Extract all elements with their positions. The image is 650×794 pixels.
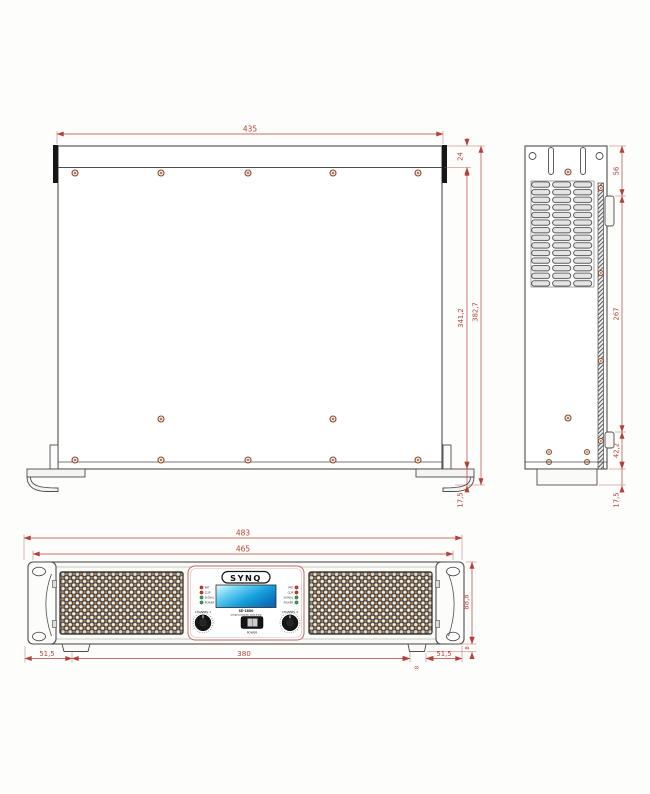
front-view: 483 465 <box>24 529 477 670</box>
led-label: POWER <box>284 601 294 605</box>
dim-label: 88,8 <box>463 594 471 609</box>
center-control-panel: SYNQ SE-1800 STEREO POWER AMPLIFIER PRT … <box>188 566 304 640</box>
brand-logo: SYNQ <box>222 572 270 584</box>
dim-top-body-depth: 341,2 <box>452 168 471 470</box>
ear-hinge <box>53 621 57 628</box>
led-label: SIGNAL <box>284 596 294 600</box>
led-indicator <box>295 596 298 599</box>
led-indicator <box>200 591 203 594</box>
led-label: POWER <box>205 601 215 605</box>
dim-label: 465 <box>236 545 251 554</box>
led-label: PRT <box>288 586 293 590</box>
dim-side-upper: 56 <box>609 146 626 196</box>
side-view-hole <box>596 153 603 160</box>
ear-hinge <box>53 581 57 588</box>
front-left-foot <box>62 644 90 652</box>
ear-hinge <box>436 581 440 588</box>
screw <box>158 457 164 463</box>
side-view-vent-grille <box>531 181 594 287</box>
front-left-rack-ear <box>28 562 57 644</box>
screw <box>330 457 336 463</box>
screw <box>585 450 590 455</box>
top-view-body <box>58 146 442 469</box>
top-view: 435 24 341,2 382,7 17,5 <box>27 125 485 508</box>
dim-front-panel-width: 465 <box>33 545 453 561</box>
screw <box>598 359 603 364</box>
dim-top-foot-height: 17,5 <box>457 462 468 508</box>
dim-label: 8 <box>415 666 421 669</box>
drawing-canvas: 435 24 341,2 382,7 17,5 <box>0 0 650 794</box>
dim-top-front-depth: 24 <box>444 138 485 176</box>
ear-hinge <box>436 621 440 628</box>
lcd-display <box>216 585 276 608</box>
dim-label: 17,5 <box>457 492 465 507</box>
screw <box>158 416 164 422</box>
side-view: 56 267 42,2 17,5 <box>525 146 626 508</box>
front-right-foot <box>408 644 426 652</box>
screw <box>158 170 164 176</box>
right-speaker-grille <box>309 572 432 634</box>
dim-label: 17,5 <box>613 492 621 507</box>
dim-label: 341,2 <box>457 308 465 327</box>
dim-label: 56 <box>613 167 621 176</box>
led-indicator <box>200 586 203 589</box>
led-indicator <box>200 596 203 599</box>
led-label: PRT <box>205 586 210 590</box>
dim-label: 267 <box>613 308 621 321</box>
dim-front-foot-width: 8 <box>402 651 434 670</box>
dim-side-mid: 267 <box>613 196 627 432</box>
dim-label: 380 <box>237 649 251 658</box>
side-view-slot <box>581 148 586 175</box>
screw <box>415 170 421 176</box>
technical-drawing: 435 24 341,2 382,7 17,5 <box>0 0 650 794</box>
side-view-foot <box>537 469 597 485</box>
screw <box>598 439 603 444</box>
mounting-slot <box>33 567 46 576</box>
side-view-slot <box>549 148 554 175</box>
dim-label: 51,5 <box>39 650 54 658</box>
side-view-hole <box>529 153 536 160</box>
led-indicator <box>295 586 298 589</box>
side-view-upper-tab <box>605 196 614 226</box>
dim-label: 483 <box>236 529 251 538</box>
dim-label: 24 <box>457 152 465 161</box>
dim-label: 51,5 <box>436 650 451 658</box>
mounting-slot <box>447 632 460 641</box>
screw <box>72 170 78 176</box>
screw <box>245 457 251 463</box>
led-indicator <box>200 601 203 604</box>
side-view-rack-rail <box>598 183 604 469</box>
screw <box>245 170 251 176</box>
screw <box>598 271 603 276</box>
dim-top-width: 435 <box>57 125 443 145</box>
power-label: POWER <box>247 631 257 635</box>
dim-label: 435 <box>243 125 258 134</box>
channel-2-label: CHANNEL 2 <box>282 610 298 614</box>
channel-1-label: CHANNEL 1 <box>195 610 211 614</box>
led-label: CLIP <box>288 591 294 595</box>
led-indicator <box>295 591 298 594</box>
led-indicator <box>295 601 298 604</box>
screw <box>330 170 336 176</box>
screw <box>598 186 603 191</box>
led-label: CLIP <box>205 591 211 595</box>
screw <box>330 416 336 422</box>
led-label: SIGNAL <box>205 596 215 600</box>
power-switch <box>241 617 263 629</box>
top-view-right-ear <box>442 145 447 183</box>
mounting-slot <box>33 632 46 641</box>
dim-front-feet-span: 380 <box>72 649 410 659</box>
dim-label: 42,2 <box>613 443 621 458</box>
dim-label: 382,7 <box>472 302 480 321</box>
brand-text: SYNQ <box>230 573 262 583</box>
dim-label: 8 <box>465 646 471 649</box>
screw <box>547 450 552 455</box>
dim-front-right-inset: 51,5 <box>426 646 462 663</box>
screw <box>565 169 571 175</box>
front-right-rack-ear <box>436 562 465 644</box>
screw <box>565 415 571 421</box>
top-view-left-ear <box>53 145 58 183</box>
model-text: SE-1800 <box>239 609 254 613</box>
screw <box>72 457 78 463</box>
screw <box>415 457 421 463</box>
left-speaker-grille <box>60 572 183 634</box>
